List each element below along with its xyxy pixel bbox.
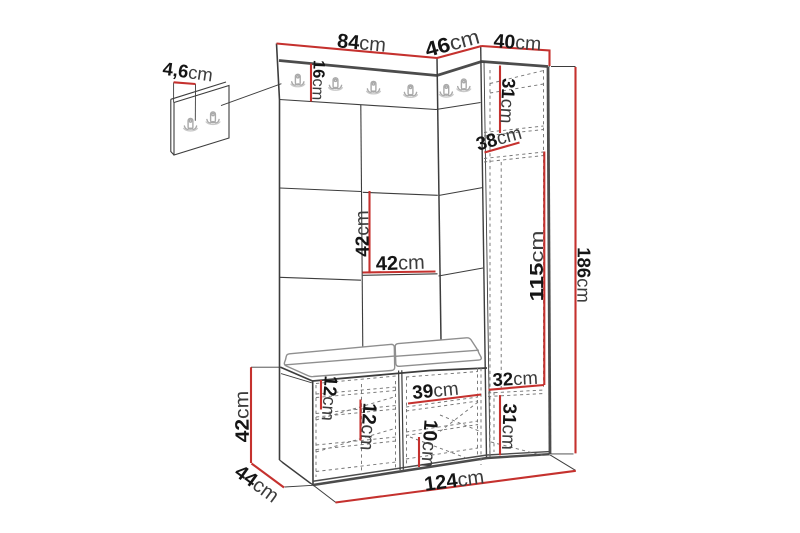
svg-text:39cm: 39cm (411, 379, 459, 404)
svg-text:42cm: 42cm (375, 252, 425, 276)
svg-text:32cm: 32cm (492, 367, 538, 390)
svg-text:12cm: 12cm (318, 375, 342, 422)
svg-text:84cm: 84cm (336, 30, 387, 56)
svg-text:12cm: 12cm (355, 402, 380, 451)
svg-text:186cm: 186cm (573, 247, 594, 303)
svg-text:31cm: 31cm (497, 403, 520, 450)
svg-text:42cm: 42cm (352, 210, 374, 257)
svg-text:115cm: 115cm (527, 231, 548, 302)
svg-text:42cm: 42cm (232, 391, 254, 443)
svg-text:31cm: 31cm (496, 78, 519, 124)
svg-text:40cm: 40cm (493, 30, 542, 55)
svg-text:16cm: 16cm (308, 60, 327, 101)
svg-text:10cm: 10cm (416, 419, 441, 468)
